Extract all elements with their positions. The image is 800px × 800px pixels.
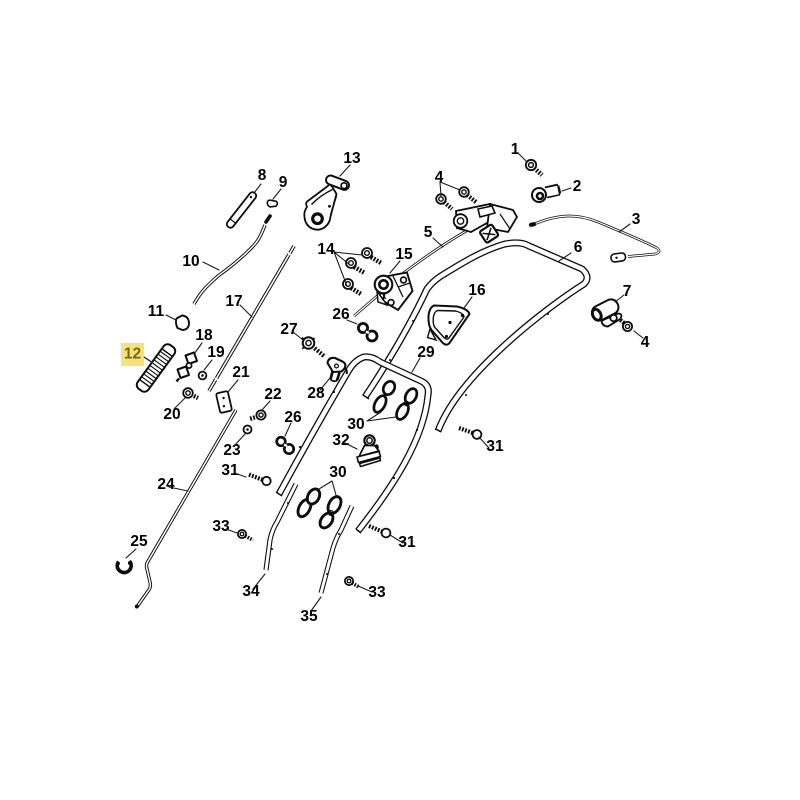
svg-text:22: 22: [264, 386, 281, 403]
svg-text:6: 6: [574, 239, 583, 256]
svg-text:31: 31: [221, 462, 239, 479]
svg-text:5: 5: [424, 224, 433, 241]
svg-text:17: 17: [225, 293, 242, 310]
svg-text:14: 14: [317, 241, 335, 258]
svg-text:35: 35: [300, 608, 318, 625]
svg-text:15: 15: [395, 246, 413, 263]
svg-text:33: 33: [212, 518, 230, 535]
svg-text:30: 30: [347, 416, 364, 433]
svg-text:24: 24: [157, 476, 175, 493]
svg-text:16: 16: [468, 282, 486, 299]
svg-text:4: 4: [641, 334, 650, 351]
svg-text:31: 31: [486, 438, 504, 455]
svg-text:9: 9: [279, 174, 288, 191]
svg-text:3: 3: [632, 211, 641, 228]
svg-text:19: 19: [207, 344, 225, 361]
svg-text:20: 20: [163, 406, 180, 423]
svg-text:34: 34: [242, 583, 260, 600]
svg-text:12: 12: [124, 346, 141, 363]
svg-text:10: 10: [182, 253, 199, 270]
svg-text:32: 32: [332, 432, 349, 449]
svg-text:8: 8: [258, 167, 267, 184]
svg-text:31: 31: [398, 534, 416, 551]
svg-text:11: 11: [148, 303, 165, 320]
svg-text:23: 23: [223, 442, 241, 459]
svg-text:33: 33: [368, 584, 386, 601]
svg-text:13: 13: [343, 150, 361, 167]
svg-text:18: 18: [195, 327, 213, 344]
svg-text:26: 26: [284, 409, 302, 426]
svg-text:30: 30: [329, 464, 346, 481]
svg-text:21: 21: [232, 364, 250, 381]
svg-text:2: 2: [573, 178, 582, 195]
svg-text:7: 7: [623, 283, 632, 300]
svg-text:1: 1: [511, 141, 520, 158]
svg-text:25: 25: [130, 533, 148, 550]
svg-text:27: 27: [280, 321, 297, 338]
